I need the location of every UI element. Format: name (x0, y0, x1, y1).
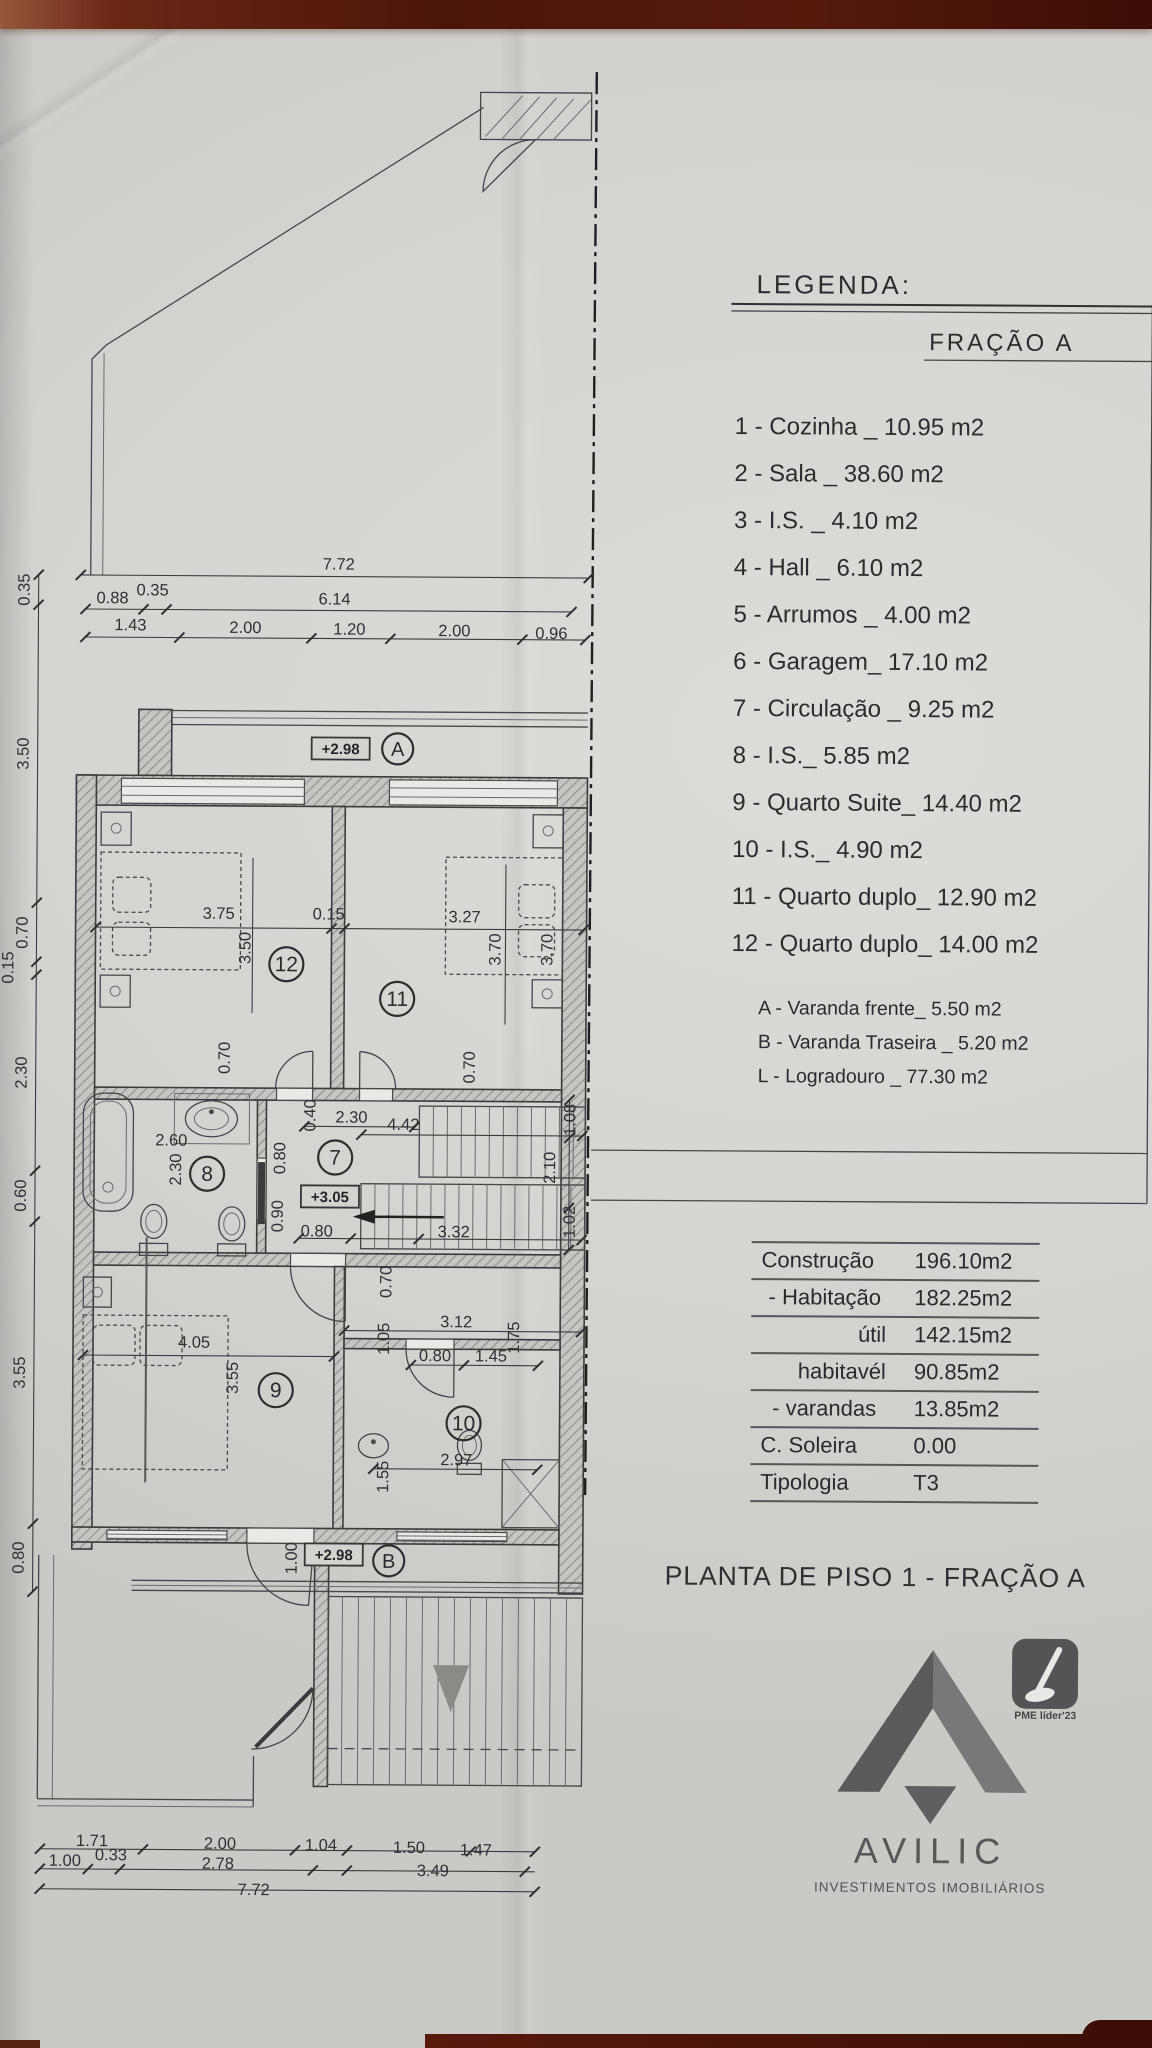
dimension-label: 0.60 (12, 1179, 30, 1211)
areas-table-label: habitavél (751, 1354, 898, 1390)
front-balcony (172, 711, 588, 728)
room-number: 7 (329, 1146, 341, 1169)
legend-subitem: A - Varanda frente_ 5.50 m2 (758, 991, 1029, 1027)
dimension-label: 2.60 (155, 1131, 187, 1149)
rear-balcony (132, 1580, 583, 1593)
dimension-label: 0.90 (269, 1200, 287, 1232)
room-number: 10 (452, 1412, 475, 1435)
legend-item: 2 - Sala _ 38.60 m2 (734, 450, 1041, 499)
dimension-label: 2.00 (229, 619, 261, 637)
dimension-label: 2.10 (541, 1152, 559, 1184)
dimension-label: 7.72 (238, 1881, 270, 1899)
dimension-label: 3.50 (236, 932, 254, 964)
areas-table-row: - varandas13.85m2 (751, 1391, 1039, 1430)
legend-item: 1 - Cozinha _ 10.95 m2 (735, 403, 1042, 452)
legend-item: 4 - Hall _ 6.10 m2 (734, 544, 1041, 593)
elevation-value: +3.05 (311, 1189, 349, 1206)
areas-table: Construção196.10m2- Habitação182.25m2úti… (750, 1241, 1040, 1504)
dimension-label: 3.32 (438, 1223, 470, 1241)
dimension-label: 1.75 (505, 1322, 523, 1354)
dimension-label: 1.47 (460, 1841, 492, 1859)
dimension-label: 2.00 (204, 1835, 236, 1853)
areas-table-value: 182.25m2 (898, 1281, 1039, 1317)
sheet-title: PLANTA DE PISO 1 - FRAÇÃO A (665, 1561, 1086, 1595)
legend-title: LEGENDA: (756, 269, 912, 301)
photographed-plan-sheet: 7.720.880.356.141.432.001.202.000.960.35… (0, 0, 1152, 2048)
dimension-label: 1.05 (375, 1323, 393, 1355)
areas-table-row: útil142.15m2 (751, 1317, 1039, 1356)
legend-item: 8 - I.S._ 5.85 m2 (732, 732, 1039, 781)
dimension-label: 1.50 (393, 1839, 425, 1857)
dimension-label: 0.40 (301, 1099, 319, 1131)
dimension-label: 0.15 (313, 905, 345, 923)
dimension-label: 0.96 (535, 625, 567, 643)
dimension-label: 0.80 (301, 1222, 333, 1240)
dimension-label: 1.43 (114, 616, 146, 634)
dimension-label: 0.80 (419, 1347, 451, 1365)
areas-table-row: - Habitação182.25m2 (751, 1280, 1039, 1319)
room-number: 9 (270, 1379, 282, 1402)
dimension-label: 1.00 (283, 1542, 301, 1574)
balcony-marker-letter: A (391, 739, 405, 761)
dimension-label: 3.55 (11, 1356, 29, 1388)
dimension-label: 0.35 (137, 581, 169, 599)
areas-table-label: útil (751, 1317, 898, 1353)
areas-table-value: 13.85m2 (898, 1392, 1039, 1428)
legend-item: 12 - Quarto duplo_ 14.00 m2 (731, 920, 1038, 969)
dimension-label: 7.72 (323, 555, 355, 573)
legend-fraction-title: FRAÇÃO A (929, 329, 1075, 358)
logo-name: AVILIC (823, 1830, 1038, 1873)
dimension-label: 2.78 (202, 1855, 234, 1873)
room-number: 11 (386, 988, 408, 1011)
dimension-label: 1.02 (561, 1206, 579, 1238)
dimension-label: 0.70 (461, 1051, 479, 1083)
legend-subitems: A - Varanda frente_ 5.50 m2B - Varanda T… (758, 991, 1029, 1095)
legend-item: 11 - Quarto duplo_ 12.90 m2 (732, 873, 1039, 922)
dimension-label: 4.05 (178, 1334, 210, 1352)
dimension-label: 1.55 (374, 1461, 392, 1493)
dimension-label: 0.33 (95, 1846, 127, 1864)
avilic-logo (837, 1638, 1078, 1825)
walls (70, 709, 588, 1788)
dimension-label: 4.42 (387, 1116, 419, 1134)
areas-table-value: 196.10m2 (898, 1244, 1039, 1280)
legend-item: 6 - Garagem_ 17.10 m2 (733, 638, 1040, 687)
dimension-label: 1.20 (333, 621, 365, 639)
dimension-label: 2.30 (13, 1056, 31, 1088)
dimension-label: 0.70 (216, 1042, 234, 1074)
legend-item: 5 - Arrumos _ 4.00 m2 (733, 591, 1040, 640)
legend-subitem: L - Logradouro _ 77.30 m2 (758, 1059, 1029, 1095)
areas-table-row: habitavél90.85m2 (751, 1354, 1039, 1393)
areas-table-row: Construção196.10m2 (751, 1243, 1039, 1282)
areas-table-label: - varandas (751, 1391, 898, 1427)
pme-lider-badge (1012, 1639, 1078, 1709)
dimension-label: 3.12 (440, 1313, 472, 1331)
room-number: 8 (201, 1163, 213, 1186)
legend-item: 10 - I.S._ 4.90 m2 (732, 826, 1039, 875)
areas-table-label: C. Soleira (750, 1428, 897, 1464)
room-number: 12 (275, 953, 298, 976)
dimension-label: 0.15 (0, 951, 17, 983)
dimension-label: 0.88 (96, 589, 128, 607)
legend-items: 1 - Cozinha _ 10.95 m22 - Sala _ 38.60 m… (731, 403, 1041, 969)
legend-item: 3 - I.S. _ 4.10 m2 (734, 497, 1041, 546)
drawing-sheet: 7.720.880.356.141.432.001.202.000.960.35… (0, 0, 1152, 2048)
dimension-label: 3.75 (203, 905, 235, 923)
dimension-label: 1.04 (305, 1836, 337, 1854)
dimension-label: 1.00 (49, 1852, 81, 1870)
pme-badge-label: PME líder'23 (998, 1710, 1093, 1723)
desk-corner-right (1082, 2020, 1152, 2048)
legend-item: 9 - Quarto Suite_ 14.40 m2 (732, 779, 1039, 828)
dimension-label: 3.70 (538, 934, 556, 966)
elevation-value: +2.98 (315, 1547, 353, 1564)
dimension-label: 0.70 (377, 1266, 395, 1298)
dimension-label: 2.30 (167, 1153, 185, 1185)
areas-table-value: 142.15m2 (898, 1318, 1039, 1354)
areas-table-value: 0.00 (897, 1429, 1038, 1465)
areas-table-row: C. Soleira0.00 (750, 1428, 1038, 1467)
dimension-label: 3.70 (486, 933, 504, 965)
dimension-label: 0.80 (271, 1142, 289, 1174)
legend-subitem: B - Varanda Traseira _ 5.20 m2 (758, 1025, 1029, 1061)
dimension-label: 2.97 (440, 1451, 472, 1469)
dimension-label: 2.00 (438, 622, 470, 640)
desk-corner-left (0, 2040, 40, 2048)
areas-table-label: - Habitação (751, 1280, 898, 1316)
dimension-label: 3.55 (224, 1362, 242, 1394)
dimension-label: 3.27 (449, 908, 481, 926)
areas-table-label: Tipologia (750, 1465, 897, 1501)
dimension-label: 1.45 (475, 1347, 507, 1365)
balcony-marker-letter: B (382, 1551, 395, 1573)
dimension-label: 3.49 (417, 1862, 449, 1880)
garage-ramp (327, 1596, 582, 1786)
dimension-label: 0.35 (16, 574, 34, 606)
dimension-label: 2.30 (335, 1109, 367, 1127)
areas-table-value: 90.85m2 (898, 1355, 1039, 1391)
areas-table-row: TipologiaT3 (750, 1465, 1038, 1504)
areas-table-label: Construção (751, 1243, 898, 1279)
areas-table-value: T3 (897, 1466, 1038, 1502)
dimension-label: 0.70 (13, 917, 31, 949)
doors (246, 1051, 455, 1606)
logo-tagline: INVESTIMENTOS IMOBILIÁRIOS (795, 1879, 1065, 1896)
dimension-label: 3.50 (15, 738, 33, 770)
dimension-label: 6.14 (318, 590, 350, 608)
logo-down-triangle (904, 1786, 956, 1824)
legend-item: 7 - Circulação _ 9.25 m2 (733, 685, 1040, 734)
desk-edge-bottom (425, 2034, 1152, 2048)
dimension-label: 0.80 (10, 1541, 28, 1573)
elevation-value: +2.98 (322, 741, 360, 758)
dimension-label: 1.08 (561, 1104, 579, 1136)
